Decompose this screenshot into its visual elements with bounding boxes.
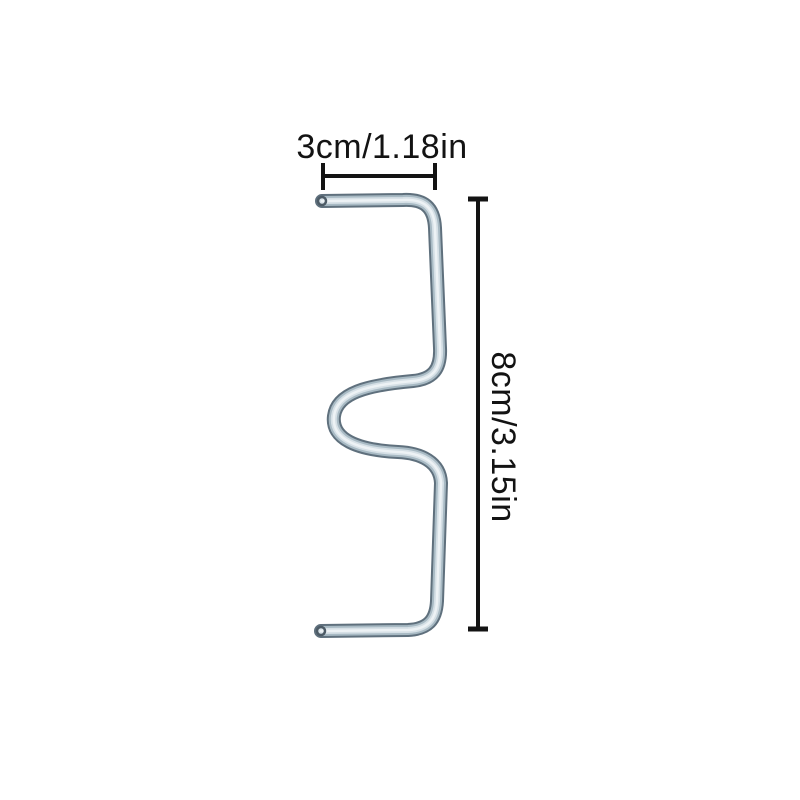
width-dimension-label: 3cm/1.18in — [296, 130, 467, 164]
height-dimension-label: 8cm/3.15in — [486, 351, 520, 522]
product-image: 3cm/1.18in 8cm/3.15in — [0, 0, 800, 800]
wire-clip-illustration — [317, 197, 441, 635]
width-dimension-line — [323, 163, 435, 190]
wire-mid-stroke — [321, 200, 441, 631]
dimension-diagram — [0, 0, 800, 800]
